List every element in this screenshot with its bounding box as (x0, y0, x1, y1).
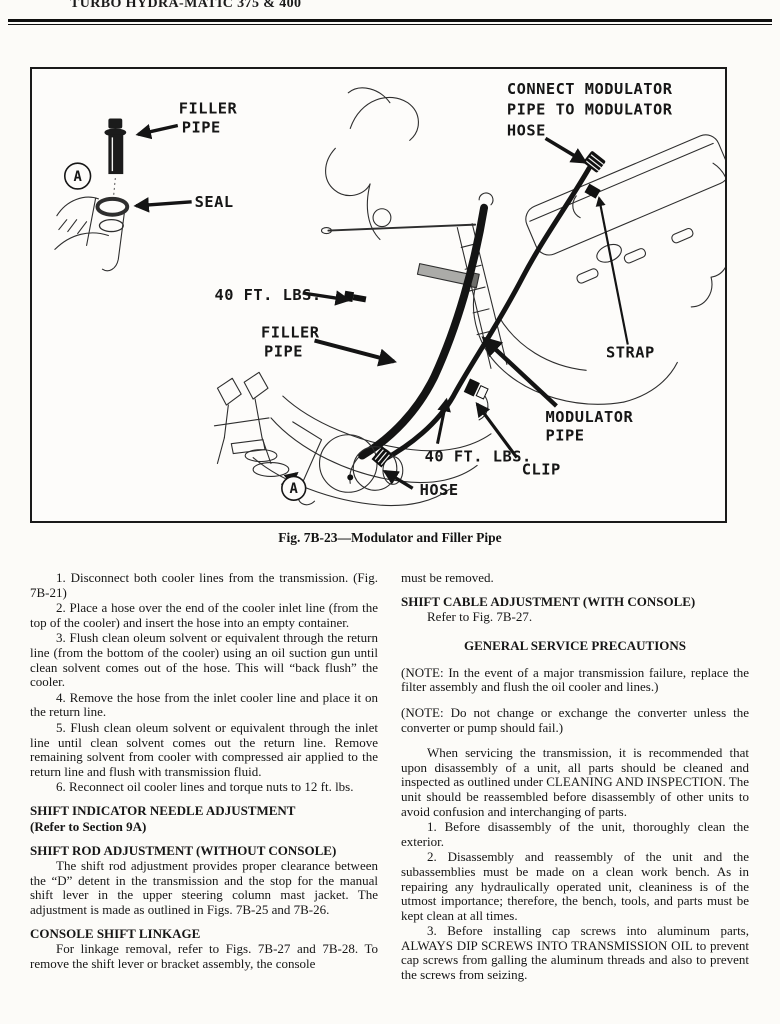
case-fragment-sketch (55, 197, 124, 271)
step-1: 1. Disconnect both cooler lines from the… (30, 571, 378, 600)
label-connect-3: HOSE (507, 121, 546, 139)
label-connect-2: PIPE TO MODULATOR (507, 101, 673, 119)
filler-pipe-mid-arrow (315, 341, 394, 362)
label-seal: SEAL (195, 193, 234, 211)
figure-caption: Fig. 7B-23—Modulator and Filler Pipe (0, 530, 780, 546)
filler-pipe-part (104, 119, 126, 199)
figure-diagram: FILLER PIPE SEAL CONNECT MODULATOR PIPE … (32, 69, 725, 521)
valve-cover-sketch (522, 131, 725, 294)
continuation-line: must be removed. (401, 571, 749, 586)
label-filler-top-2: PIPE (182, 118, 221, 136)
heading-shift-indicator: SHIFT INDICATOR NEEDLE ADJUSTMENT (30, 804, 378, 819)
label-clip: CLIP (522, 460, 561, 478)
console-linkage-paragraph: For linkage removal, refer to Figs. 7B-2… (30, 942, 378, 971)
step-5: 5. Flush clean oleum solvent or equivale… (30, 721, 378, 779)
note-2: (NOTE: Do not change or exchange the con… (401, 706, 749, 735)
bolt-40ftlbs (344, 291, 367, 305)
step-3: 3. Flush clean oleum solvent or equivale… (30, 631, 378, 689)
svg-text:A: A (73, 169, 82, 185)
servicing-paragraph: When servicing the transmission, it is r… (401, 746, 749, 819)
step-6: 6. Reconnect oil cooler lines and torque… (30, 780, 378, 795)
label-modulator-2: PIPE (546, 427, 585, 445)
right-column: must be removed. SHIFT CABLE ADJUSTMENT … (401, 571, 749, 984)
label-torque-left: 40 FT. LBS. (214, 286, 321, 304)
heading-shift-cable: SHIFT CABLE ADJUSTMENT (WITH CONSOLE) (401, 595, 749, 610)
filler-pipe-top-arrow (138, 126, 178, 135)
manual-page: TURBO HYDRA-MATIC 375 & 400 (0, 0, 780, 1024)
step-2: 2. Place a hose over the end of the cool… (30, 601, 378, 630)
page-header-title: TURBO HYDRA-MATIC 375 & 400 (70, 0, 301, 12)
heading-general-precautions: GENERAL SERVICE PRECAUTIONS (401, 639, 749, 654)
label-filler-top-1: FILLER (179, 100, 238, 118)
label-hose: HOSE (420, 481, 459, 499)
detail-marker-top: A (65, 163, 91, 189)
detail-marker-bottom: A (282, 476, 306, 500)
modulator-pipe-arrow (484, 339, 556, 406)
label-filler-mid-1: FILLER (261, 324, 320, 342)
filler-pipe-drawing (362, 208, 484, 456)
heading-shift-rod: SHIFT ROD ADJUSTMENT (WITHOUT CONSOLE) (30, 844, 378, 859)
svg-text:A: A (290, 481, 299, 497)
label-filler-mid-2: PIPE (264, 342, 303, 360)
figure-labels: FILLER PIPE SEAL CONNECT MODULATOR PIPE … (179, 80, 673, 499)
header-rule-thin (8, 24, 772, 25)
heading-console-linkage: CONSOLE SHIFT LINKAGE (30, 927, 378, 942)
precaution-item-3: 3. Before installing cap screws into alu… (401, 924, 749, 982)
shift-cable-paragraph: Refer to Fig. 7B-27. (401, 610, 749, 625)
label-torque-right: 40 FT. LBS. (425, 448, 532, 466)
precaution-item-2: 2. Disassembly and reassembly of the uni… (401, 850, 749, 923)
heading-shift-indicator-sub: (Refer to Section 9A) (30, 820, 378, 835)
label-modulator-1: MODULATOR (546, 408, 634, 426)
header-rule-thick (8, 19, 772, 22)
connect-modulator-arrow (546, 138, 586, 162)
torque-right-arrow (437, 400, 446, 444)
strap-arrow (599, 198, 628, 345)
label-connect-1: CONNECT MODULATOR (507, 80, 673, 98)
seal-arrow (136, 202, 192, 206)
figure-frame: FILLER PIPE SEAL CONNECT MODULATOR PIPE … (30, 67, 727, 523)
pedals-sketch (214, 372, 271, 463)
step-4: 4. Remove the hose from the inlet cooler… (30, 691, 378, 720)
precaution-item-1: 1. Before disassembly of the unit, thoro… (401, 820, 749, 849)
shift-rod-paragraph: The shift rod adjustment provides proper… (30, 859, 378, 917)
left-column: 1. Disconnect both cooler lines from the… (30, 571, 378, 973)
note-1: (NOTE: In the event of a major transmiss… (401, 666, 749, 695)
label-strap: STRAP (606, 343, 655, 361)
